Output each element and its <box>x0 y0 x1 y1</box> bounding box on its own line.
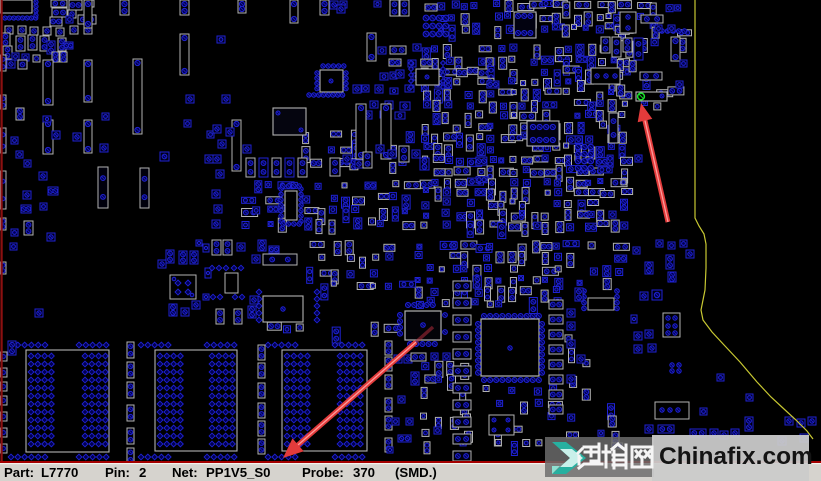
svg-text:Probe:: Probe: <box>302 465 344 480</box>
svg-text:370: 370 <box>353 465 375 480</box>
svg-text:(SMD.): (SMD.) <box>395 465 437 480</box>
svg-text:PP1V5_S0: PP1V5_S0 <box>206 465 271 480</box>
svg-text:Chinafix.com: Chinafix.com <box>659 443 813 470</box>
svg-text:Part:: Part: <box>4 465 34 480</box>
svg-text:L7770: L7770 <box>41 465 78 480</box>
svg-text:Net:: Net: <box>172 465 198 480</box>
svg-text:2: 2 <box>139 465 146 480</box>
svg-text:Pin:: Pin: <box>105 465 130 480</box>
